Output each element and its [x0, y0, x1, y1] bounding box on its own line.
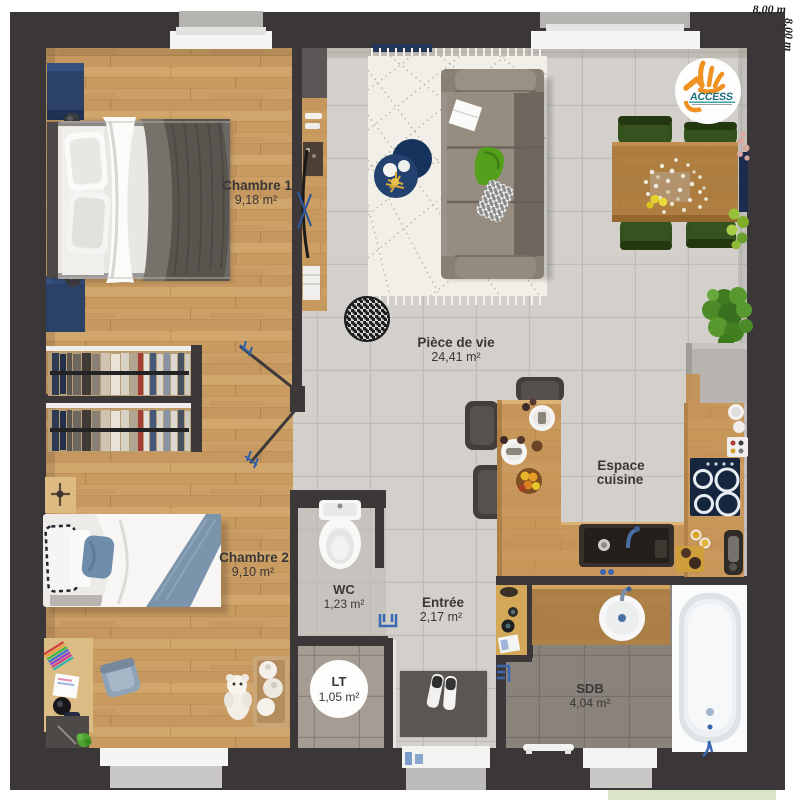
svg-text:9,18 m²: 9,18 m² [235, 193, 277, 207]
svg-text:LT: LT [332, 674, 347, 689]
svg-text:SDB: SDB [576, 681, 603, 696]
svg-text:1,05 m²: 1,05 m² [319, 690, 360, 704]
svg-text:Chambre 2: Chambre 2 [219, 550, 289, 565]
svg-text:Chambre 1: Chambre 1 [222, 178, 292, 193]
svg-text:8,00 m: 8,00 m [753, 2, 786, 16]
svg-text:8,00 m: 8,00 m [782, 18, 796, 51]
svg-text:1,23 m²: 1,23 m² [324, 597, 365, 611]
svg-text:Pièce de vie: Pièce de vie [417, 335, 495, 350]
svg-text:ACCESS: ACCESS [689, 91, 733, 103]
svg-text:2,17 m²: 2,17 m² [420, 610, 462, 624]
svg-text:Entrée: Entrée [422, 595, 465, 610]
svg-text:24,41 m²: 24,41 m² [431, 350, 480, 364]
svg-text:WC: WC [333, 582, 355, 597]
svg-text:Espace: Espace [597, 458, 645, 473]
svg-text:cuisine: cuisine [597, 472, 644, 487]
svg-text:4,04 m²: 4,04 m² [570, 696, 611, 710]
svg-text:9,10 m²: 9,10 m² [232, 565, 274, 579]
